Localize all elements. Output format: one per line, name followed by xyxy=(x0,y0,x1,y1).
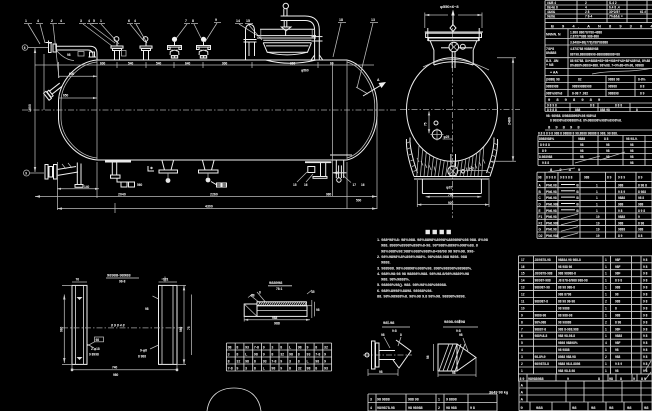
svg-text:J8 878-8/988 988-98: J8 878-8/988 988-98 xyxy=(558,279,588,283)
svg-text:93: 93 xyxy=(324,366,328,370)
svg-text:8 9: 8 9 xyxy=(641,377,646,381)
svg-text:88798.888888998-8888888888=88: 88798.888888998-8888888888=88 xyxy=(570,53,620,57)
svg-text:98Ⅰ-98: 98Ⅰ-98 xyxy=(383,320,395,325)
svg-text:17: 17 xyxy=(353,183,357,187)
svg-text:1: 1 xyxy=(605,286,607,290)
svg-text:98 9888: 98 9888 xyxy=(377,398,390,402)
svg-text:650: 650 xyxy=(63,94,69,98)
svg-text:8 9: 8 9 xyxy=(638,176,643,180)
svg-text:8 9 8: 8 9 8 xyxy=(615,279,622,283)
svg-text:1: 1 xyxy=(596,190,598,194)
svg-text:8 9 8: 8 9 8 xyxy=(638,209,645,213)
svg-text:98: 98 xyxy=(538,176,542,180)
svg-text:9: 9 xyxy=(307,345,309,349)
svg-text:98988: 98988 xyxy=(608,85,617,89)
svg-text:16: 16 xyxy=(521,265,525,269)
svg-text:5: 5 xyxy=(93,19,95,23)
svg-text:11: 11 xyxy=(521,300,525,304)
svg-text:98: 98 xyxy=(251,294,255,298)
svg-text:98: 98 xyxy=(228,345,232,349)
svg-text:98: 98 xyxy=(644,405,649,410)
svg-text:9 8: 9 8 xyxy=(643,362,648,366)
svg-text:988. 8989%8998%898%8-98. 98*98: 988. 8989%8998%898%8-98. 98*988%8898%998… xyxy=(381,244,478,248)
svg-text:8.988988: 8.988988 xyxy=(539,155,553,159)
svg-text:98: 98 xyxy=(379,370,383,374)
svg-text:7-8: 7-8 xyxy=(271,359,276,363)
svg-text:9888: 9888 xyxy=(618,228,625,232)
svg-text:8N888: 8N888 xyxy=(546,51,556,55)
svg-text:1: 1 xyxy=(521,369,523,373)
svg-text:1. 988*98%8: 98%988. 98%8898%8: 1. 988*98%8: 98%988. 98%8898%8998%889898… xyxy=(377,238,488,242)
svg-text:988: 988 xyxy=(274,322,280,326)
svg-text:98: 98 xyxy=(580,155,584,159)
svg-text:140: 140 xyxy=(84,185,90,189)
svg-text:+ AA: + AA xyxy=(550,71,558,75)
svg-text:PN6.98: PN6.98 xyxy=(546,228,557,232)
svg-text:9 8998: 9 8998 xyxy=(89,353,99,357)
svg-text:9 8: 9 8 xyxy=(643,258,648,262)
svg-text:8: 8 xyxy=(400,333,402,337)
svg-text:8 98 8: 8 98 8 xyxy=(638,184,647,188)
svg-text:9 8: 9 8 xyxy=(643,320,648,324)
svg-text:988 98-8.98: 988 98-8.98 xyxy=(558,369,575,373)
svg-text:9888.: 9888. xyxy=(381,261,391,265)
svg-text:98 8: 98 8 xyxy=(638,196,644,200)
svg-text:4: 4 xyxy=(585,6,587,10)
svg-text:2040: 2040 xyxy=(118,192,126,196)
svg-text:2 8: 2 8 xyxy=(585,10,590,14)
svg-text:PN6.988: PN6.988 xyxy=(546,203,559,207)
svg-text:9888A 98 988-8: 9888A 98 988-8 xyxy=(558,258,581,262)
svg-text:988 98: 988 98 xyxy=(408,398,419,402)
svg-text:9 8 9 8 8: 9 8 9 8 8 xyxy=(560,176,573,180)
svg-text:8: 8 xyxy=(259,291,261,295)
svg-text:J8/9878-98: J8/9878-98 xyxy=(535,258,551,262)
svg-text:980: 980 xyxy=(59,326,63,332)
svg-text:98988988: 98988988 xyxy=(528,377,544,381)
svg-text:32: 32 xyxy=(298,366,302,370)
svg-text:3: 3 xyxy=(80,19,82,23)
svg-text:540: 540 xyxy=(156,62,162,66)
svg-text:/8: /8 xyxy=(576,203,579,207)
svg-text:888: 888 xyxy=(575,108,581,112)
svg-text:8: 8 xyxy=(271,352,273,356)
svg-text:1: 1 xyxy=(605,362,607,366)
svg-text:PN6.98: PN6.98 xyxy=(546,215,557,219)
svg-text:3: 3 xyxy=(228,352,230,356)
svg-text:3: 3 xyxy=(271,345,273,349)
svg-text:1: 1 xyxy=(605,313,607,317)
svg-text:19: 19 xyxy=(596,234,600,238)
svg-text:60: 60 xyxy=(330,62,334,66)
svg-text:4: 4 xyxy=(370,406,372,410)
svg-text:560: 560 xyxy=(137,183,143,187)
svg-text:8: 8 xyxy=(315,366,317,370)
svg-text:8: 8 xyxy=(254,359,256,363)
svg-text:4&6&: 4&6& xyxy=(547,10,556,14)
svg-text:740: 740 xyxy=(112,366,118,370)
svg-text:PN6.98: PN6.98 xyxy=(546,196,557,200)
svg-text:18: 18 xyxy=(339,18,343,22)
svg-text:9 8898: 9 8898 xyxy=(446,398,457,402)
svg-text:98/9878-98: 98/9878-98 xyxy=(377,406,395,410)
svg-text:5: 5 xyxy=(521,341,523,345)
svg-text:98: 98 xyxy=(580,143,584,147)
svg-text:9 8: 9 8 xyxy=(643,272,648,276)
svg-text:4: 4 xyxy=(37,19,39,23)
svg-text:98: 98 xyxy=(271,366,275,370)
svg-text:4: 4 xyxy=(605,341,607,345)
svg-text:2: 2 xyxy=(605,355,607,359)
svg-text:98: 98988. 8/98888998%98 988%8: 98: 98988. 8/98888998%98 988%8 xyxy=(546,114,596,118)
svg-text:9 8: 9 8 xyxy=(618,209,623,213)
svg-text:988 98988-8: 988 98988-8 xyxy=(558,272,576,276)
svg-text:3: 3 xyxy=(521,355,523,359)
svg-text:8: 8 xyxy=(598,377,600,381)
svg-text:8988 988.98: 8988 988.98 xyxy=(558,355,576,359)
svg-text:16: 16 xyxy=(304,183,308,187)
svg-text:15: 15 xyxy=(246,19,250,23)
svg-text:8 8 8: 8 8 8 xyxy=(615,104,622,108)
svg-text:8&4& 8: 8&4& 8 xyxy=(547,6,558,10)
svg-text:8 9: 8 9 xyxy=(618,234,623,238)
svg-text:6: 6 xyxy=(24,46,26,50)
svg-text:98: 98 xyxy=(459,333,463,337)
svg-text:15: 15 xyxy=(521,272,525,276)
svg-text:98: 98 xyxy=(580,149,584,153)
svg-text:+ N8: + N8 xyxy=(546,63,554,67)
svg-text:988 8-988.988: 988 8-988.988 xyxy=(558,327,579,331)
svg-text:98 98888: 98 98888 xyxy=(558,320,572,324)
svg-text:98 9888: 98 9888 xyxy=(558,348,570,352)
svg-text:10: 10 xyxy=(521,306,525,310)
svg-text:1: 1 xyxy=(596,196,598,200)
svg-text:13: 13 xyxy=(371,18,375,22)
svg-text:9 8: 9 8 xyxy=(643,286,648,290)
svg-text:8 98: 8 98 xyxy=(638,221,644,225)
svg-text:F2: F2 xyxy=(539,221,543,225)
svg-text:98: 98 xyxy=(572,405,577,410)
svg-text:1: 1 xyxy=(605,272,607,276)
svg-text:93: 93 xyxy=(245,345,249,349)
svg-text:4. 988%98:98 98 98898%988. 98%: 4. 988%98:98 98 98898%988. 98%98.8/98%98… xyxy=(377,272,469,276)
svg-text:640: 640 xyxy=(185,62,191,66)
svg-text:98: 98 xyxy=(254,352,258,356)
svg-text:7: 7 xyxy=(185,19,187,23)
svg-text:88 98 98-98: 88 98 98-98 xyxy=(558,300,575,304)
svg-text:600: 600 xyxy=(69,72,75,76)
svg-text:980: 980 xyxy=(326,193,332,197)
svg-text:8: 8 xyxy=(615,306,617,310)
svg-text:9898-98Ⅱ98: 9898-98Ⅱ98 xyxy=(444,319,466,324)
svg-text:2: 2 xyxy=(585,1,587,5)
svg-text:98: 98 xyxy=(630,143,634,147)
svg-text:PN6.98: PN6.98 xyxy=(546,209,557,213)
svg-text:/8: /8 xyxy=(576,196,579,200)
svg-text:98: 98 xyxy=(307,366,311,370)
svg-text:988 8798: 988 8798 xyxy=(558,293,572,297)
svg-text:98: 98 xyxy=(298,345,302,349)
svg-text:4300: 4300 xyxy=(205,204,213,208)
svg-text:8: 8 xyxy=(192,19,194,23)
svg-text:1: 1 xyxy=(596,203,598,207)
svg-text:8-98 7 .982: 8-98 7 .982 xyxy=(572,92,588,96)
svg-text:8 988: 8 988 xyxy=(138,355,146,359)
svg-text:988998: 988998 xyxy=(269,280,283,285)
svg-text:9 8: 9 8 xyxy=(643,306,648,310)
svg-text:98: 98 xyxy=(289,352,293,356)
svg-text:98: 98 xyxy=(245,359,249,363)
svg-text:8: 8 xyxy=(236,345,238,349)
svg-text:988: 988 xyxy=(272,316,278,320)
svg-text:98F: 98F xyxy=(615,341,621,345)
svg-text:988: 988 xyxy=(615,355,621,359)
svg-text:9 8: 9 8 xyxy=(643,313,648,317)
svg-text:2: 2 xyxy=(438,406,440,410)
svg-text:988: 988 xyxy=(615,300,621,304)
svg-text:7-8: 7-8 xyxy=(254,345,259,349)
svg-text:98: 98 xyxy=(452,371,456,375)
svg-text:9 8 9: 9 8 9 xyxy=(618,176,625,180)
svg-text:8 9 8 9 8: 8 9 8 9 8 xyxy=(548,125,582,130)
svg-text:98%988%98:988%988%988%8+98/98: 98%988%98:988%988%988%8+98/98 98 98%98. … xyxy=(381,249,475,253)
svg-text:8 98: 8 98 xyxy=(615,320,621,324)
svg-text:7-8: 7-8 xyxy=(315,352,320,356)
svg-text:1: 1 xyxy=(605,265,607,269)
svg-text:1: 1 xyxy=(605,369,607,373)
svg-text:98F: 98F xyxy=(615,327,621,331)
svg-text:75: 75 xyxy=(424,122,428,126)
svg-text:9: 9 xyxy=(324,352,326,356)
svg-text:8988988%: 8988988% xyxy=(539,137,554,141)
svg-text:98: 98 xyxy=(96,338,100,342)
svg-text:4.878788 98888988: 4.878788 98888988 xyxy=(570,47,599,51)
svg-text:8: 8 xyxy=(298,352,300,356)
svg-text:500: 500 xyxy=(356,199,362,203)
svg-text:9 8: 9 8 xyxy=(470,406,475,410)
svg-text:93: 93 xyxy=(307,352,311,356)
svg-text:988%8-8: 988%8-8 xyxy=(535,334,548,338)
svg-text:78:1: 78:1 xyxy=(276,287,283,291)
svg-text:93: 93 xyxy=(263,359,267,363)
svg-text:PN6.988: PN6.988 xyxy=(546,234,559,238)
svg-text:8.8 8 8 9 8 988 8 98888 8 98.8: 8.8 8 8 9 8 988 8 98888 8 98.8888 98888 … xyxy=(538,132,618,136)
svg-text:8: 8 xyxy=(636,108,638,112)
svg-text:9888-98: 9888-98 xyxy=(535,313,547,317)
svg-text:9 8: 9 8 xyxy=(643,334,648,338)
svg-text:8 8: 8 8 xyxy=(604,137,609,141)
svg-text:9 8 8: 9 8 8 xyxy=(542,161,549,165)
svg-text:8 98898%8998888%8. 8%988898%98: 8 98898%8998888%8. 8%988898%988%8998%8. xyxy=(550,119,622,123)
svg-text:E: E xyxy=(539,209,541,213)
svg-text:φ20: φ20 xyxy=(446,186,452,190)
svg-text:(9888) 98: (9888) 98 xyxy=(546,78,560,82)
svg-text:32: 32 xyxy=(236,359,240,363)
svg-text:4: 4 xyxy=(60,19,62,23)
svg-text:9: 9 xyxy=(263,352,265,356)
svg-text:9: 9 xyxy=(215,18,217,22)
svg-text:98 9888: 98 9888 xyxy=(558,306,570,310)
svg-text:121: 121 xyxy=(163,278,169,282)
svg-text:1: 1 xyxy=(605,327,607,331)
svg-text:9: 9 xyxy=(324,359,326,363)
svg-text:7-8: 7-8 xyxy=(228,366,233,370)
svg-text:9 8: 9 8 xyxy=(643,279,648,283)
svg-text:9: 9 xyxy=(25,172,27,176)
svg-text:#&B 4: #&B 4 xyxy=(547,1,556,5)
svg-text:9: 9 xyxy=(236,366,238,370)
svg-text:98887-8: 98887-8 xyxy=(535,327,547,331)
svg-text:9 8: 9 8 xyxy=(643,341,648,345)
svg-text:1: 1 xyxy=(605,306,607,310)
svg-text:988987-8: 988987-8 xyxy=(535,300,549,304)
svg-text:8: 8 xyxy=(280,345,282,349)
svg-text:98 98988: 98 98988 xyxy=(408,406,423,410)
svg-text:988: 988 xyxy=(618,221,624,225)
svg-text:98 98-9.: 98 98-9. xyxy=(626,137,638,141)
svg-text:98: 98 xyxy=(381,333,385,337)
svg-text:7 8-4: 7 8-4 xyxy=(585,15,592,19)
svg-text:3: 3 xyxy=(289,359,291,363)
svg-text:988 98-98.8: 988 98-98.8 xyxy=(558,334,575,338)
svg-text:9: 9 xyxy=(567,377,569,381)
svg-text:4: 4 xyxy=(521,348,523,352)
svg-text:32: 32 xyxy=(324,345,328,349)
svg-text:8 8: 8 8 xyxy=(638,234,643,238)
svg-text:3: 3 xyxy=(370,398,372,402)
svg-text:8 8: 8 8 xyxy=(640,85,645,89)
svg-text:8 9: 8 9 xyxy=(542,149,547,153)
svg-text:9 8 9 8 9 8 9: 9 8 9 8 9 8 9 xyxy=(548,97,603,102)
svg-text:98: 98 xyxy=(627,405,632,410)
svg-text:988. 98%9888%.: 988. 98%9888%. xyxy=(381,278,410,282)
svg-text:98899888988: 98899888988 xyxy=(572,85,592,89)
svg-text:9888: 9888 xyxy=(578,137,585,141)
svg-text:600: 600 xyxy=(100,62,106,66)
svg-text:8 9: 8 9 xyxy=(640,92,645,96)
svg-text:8-8%: 8-8% xyxy=(638,78,646,82)
svg-text:88. 98%98988%8. 98%98 9.8 98%9: 88. 98%98988%8. 98%98 9.8 98%98. 98898%9… xyxy=(377,295,466,299)
svg-text:9 8: 9 8 xyxy=(643,265,648,269)
svg-text:540: 540 xyxy=(128,62,134,66)
svg-text:B 9 4. A N 8 9 3 8 4: B 9 4. A N 8 9 3 8 4 xyxy=(551,24,652,29)
svg-text:S-4 2: S-4 2 xyxy=(609,1,617,5)
svg-text:988: 988 xyxy=(615,313,621,317)
svg-text:98-8: 98-8 xyxy=(119,280,126,284)
svg-text:920: 920 xyxy=(448,201,454,205)
svg-text:88 98 988-8: 88 98 988-8 xyxy=(558,286,575,290)
svg-text:9 8 9: 9 8 9 xyxy=(618,190,625,194)
svg-text:988%98%8: 988%98%8 xyxy=(546,92,563,96)
svg-text:76: 76 xyxy=(76,278,80,282)
svg-text:98F: 98F xyxy=(615,258,621,262)
svg-text:98/987-988: 98/987-988 xyxy=(535,279,551,283)
svg-text:98: 98 xyxy=(145,307,149,311)
svg-text:45: 45 xyxy=(311,290,315,294)
svg-text:/8: /8 xyxy=(576,209,579,213)
svg-text:32: 32 xyxy=(280,352,284,356)
svg-text:88 988-98: 88 988-98 xyxy=(558,313,573,317)
svg-text:8 8: 8 8 xyxy=(590,104,595,108)
svg-text:980: 980 xyxy=(113,373,119,377)
svg-text:98: 98 xyxy=(615,369,619,373)
svg-text:61 #: 61 # xyxy=(640,10,646,14)
svg-text:98: 98 xyxy=(630,155,634,159)
svg-text:98: 98 xyxy=(606,143,610,147)
svg-text:9888988: 9888988 xyxy=(546,85,559,89)
svg-text:9-φ8: 9-φ8 xyxy=(140,349,147,353)
svg-text:98-8%9: 98-8%9 xyxy=(535,355,546,359)
svg-text:/8: /8 xyxy=(576,190,579,194)
svg-text:1: 1 xyxy=(605,279,607,283)
svg-text:/8: /8 xyxy=(576,184,579,188)
svg-text:8 9: 8 9 xyxy=(607,176,612,180)
svg-text:φ550×6−8: φ550×6−8 xyxy=(440,4,459,9)
svg-text:D2: D2 xyxy=(539,234,543,238)
svg-text:16: 16 xyxy=(361,183,365,187)
svg-text:14: 14 xyxy=(521,279,525,283)
svg-text:9888 98: 9888 98 xyxy=(608,78,620,82)
svg-text:19: 19 xyxy=(596,228,600,232)
svg-text:988898: 988898 xyxy=(608,92,619,96)
svg-text:8: 8 xyxy=(254,366,256,370)
svg-text:2-φ18: 2-φ18 xyxy=(91,347,100,351)
svg-text:9 8: 9 8 xyxy=(643,348,648,352)
svg-text:988: 988 xyxy=(638,228,644,232)
svg-text:790: 790 xyxy=(448,193,454,197)
svg-text:9: 9 xyxy=(263,345,265,349)
svg-text:17: 17 xyxy=(521,258,525,262)
svg-text:98: 98 xyxy=(615,348,619,352)
svg-text:3.8488+88(778)788*88888: 3.8488+88(778)788*88888 xyxy=(570,41,608,45)
svg-text:98: 98 xyxy=(426,355,430,359)
svg-text:1600: 1600 xyxy=(28,104,32,112)
svg-text:3: 3 xyxy=(245,366,247,370)
svg-text:9888: 9888 xyxy=(618,196,625,200)
svg-text:98F: 98F xyxy=(615,272,621,276)
svg-text:9 8: 9 8 xyxy=(643,355,648,359)
svg-text:888 98: 888 98 xyxy=(600,108,610,112)
svg-text:6.4 8 .4: 6.4 8 .4 xyxy=(609,6,620,10)
svg-text:J8/9878-988: J8/9878-988 xyxy=(535,272,553,276)
svg-text:8: 8 xyxy=(620,377,622,381)
svg-text:9: 9 xyxy=(280,366,282,370)
svg-text:2: 2 xyxy=(51,19,53,23)
svg-text:1: 1 xyxy=(605,348,607,352)
svg-text:988: 988 xyxy=(618,184,624,188)
svg-text:1: 1 xyxy=(596,184,598,188)
svg-text:8%888%988/8+888. 98%88. 7+9%88: 8%888%988/8+888. 98%88. 7+9%88+8%98, 989… xyxy=(570,64,644,68)
svg-text:F1: F1 xyxy=(539,215,543,219)
svg-text:988: 988 xyxy=(638,203,644,207)
svg-text:8: 8 xyxy=(521,320,523,324)
svg-text:9: 9 xyxy=(521,313,523,317)
svg-text:9898 98898%: 9898 98898% xyxy=(558,341,578,345)
svg-text:988: 988 xyxy=(615,286,621,290)
svg-text:98F: 98F xyxy=(615,265,621,269)
svg-text:1: 1 xyxy=(605,293,607,297)
svg-text:988987-98: 988987-98 xyxy=(535,286,550,290)
svg-text:2260: 2260 xyxy=(210,192,218,196)
svg-text:98: 98 xyxy=(609,377,613,381)
svg-text:2: 2 xyxy=(605,300,607,304)
svg-text:88 98788. 84+8888+88+98+988+9%: 88 98788. 84+8888+88+98+988+9%8+88%88%8,… xyxy=(570,59,650,63)
svg-text:1: 1 xyxy=(605,334,607,338)
svg-text:988: 988 xyxy=(618,203,624,207)
svg-text:98: 98 xyxy=(630,161,634,165)
svg-text:PN6.08: PN6.08 xyxy=(546,184,557,188)
svg-text:2486: 2486 xyxy=(508,117,512,125)
